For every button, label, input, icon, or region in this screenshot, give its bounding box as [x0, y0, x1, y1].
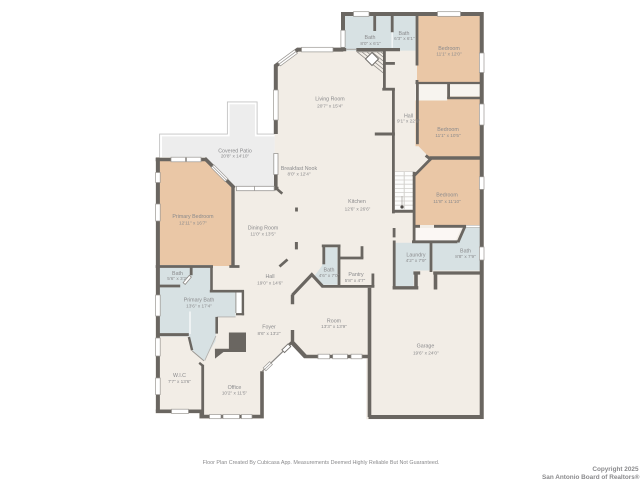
svg-text:12'6" x 26'6": 12'6" x 26'6" — [345, 207, 371, 212]
svg-text:San Antonio Board of Realtors®: San Antonio Board of Realtors® — [542, 473, 640, 480]
svg-text:Bedroom: Bedroom — [436, 193, 458, 199]
svg-text:20'7" x 15'4": 20'7" x 15'4" — [317, 104, 343, 109]
svg-text:8'6" x 13'2": 8'6" x 13'2" — [257, 331, 280, 336]
svg-text:12'11" x 16'7": 12'11" x 16'7" — [179, 221, 207, 226]
svg-text:Hall: Hall — [265, 274, 274, 280]
svg-text:5'8" x 4'7": 5'8" x 4'7" — [345, 278, 366, 283]
svg-text:8'0" x 6'1": 8'0" x 6'1" — [360, 41, 381, 46]
svg-text:Foyer: Foyer — [262, 325, 276, 331]
svg-text:11'0" x 13'5": 11'0" x 13'5" — [250, 231, 276, 236]
svg-text:9'1" x 22'0": 9'1" x 22'0" — [397, 119, 420, 124]
svg-text:Floor Plan Created By Cubicasa: Floor Plan Created By Cubicasa App. Meas… — [203, 460, 440, 466]
svg-text:4'2" x 7'9": 4'2" x 7'9" — [406, 258, 427, 263]
svg-text:19'6" x 24'0": 19'6" x 24'0" — [413, 351, 439, 356]
svg-text:Garage: Garage — [417, 344, 435, 350]
svg-text:Living Room: Living Room — [315, 97, 345, 103]
svg-text:Primary Bedroom: Primary Bedroom — [172, 214, 214, 220]
svg-text:6'3" x 6'1": 6'3" x 6'1" — [394, 36, 415, 41]
svg-text:7'7" x 13'6": 7'7" x 13'6" — [168, 379, 191, 384]
svg-text:8'0" x 12'4": 8'0" x 12'4" — [287, 172, 310, 177]
svg-text:13'6" x 17'4": 13'6" x 17'4" — [186, 303, 212, 308]
svg-text:11'1" x 12'0": 11'1" x 12'0" — [436, 52, 462, 57]
svg-text:Kitchen: Kitchen — [348, 199, 366, 205]
svg-text:5'6" x 3'2": 5'6" x 3'2" — [167, 276, 188, 281]
svg-text:10'2" x 11'5": 10'2" x 11'5" — [222, 390, 248, 395]
svg-text:8'8" x 7'9": 8'8" x 7'9" — [455, 254, 476, 259]
svg-text:11'8" x 11'10": 11'8" x 11'10" — [433, 199, 461, 204]
svg-text:13'3" x 13'9": 13'3" x 13'9" — [321, 324, 347, 329]
svg-text:11'1" x 10'5": 11'1" x 10'5" — [435, 133, 461, 138]
svg-text:20'8" x 14'10": 20'8" x 14'10" — [221, 154, 250, 159]
svg-text:4'6" x 7'0": 4'6" x 7'0" — [319, 273, 340, 278]
svg-text:Copyright 2025: Copyright 2025 — [592, 466, 639, 473]
svg-text:19'0" x 14'6": 19'0" x 14'6" — [257, 281, 283, 286]
